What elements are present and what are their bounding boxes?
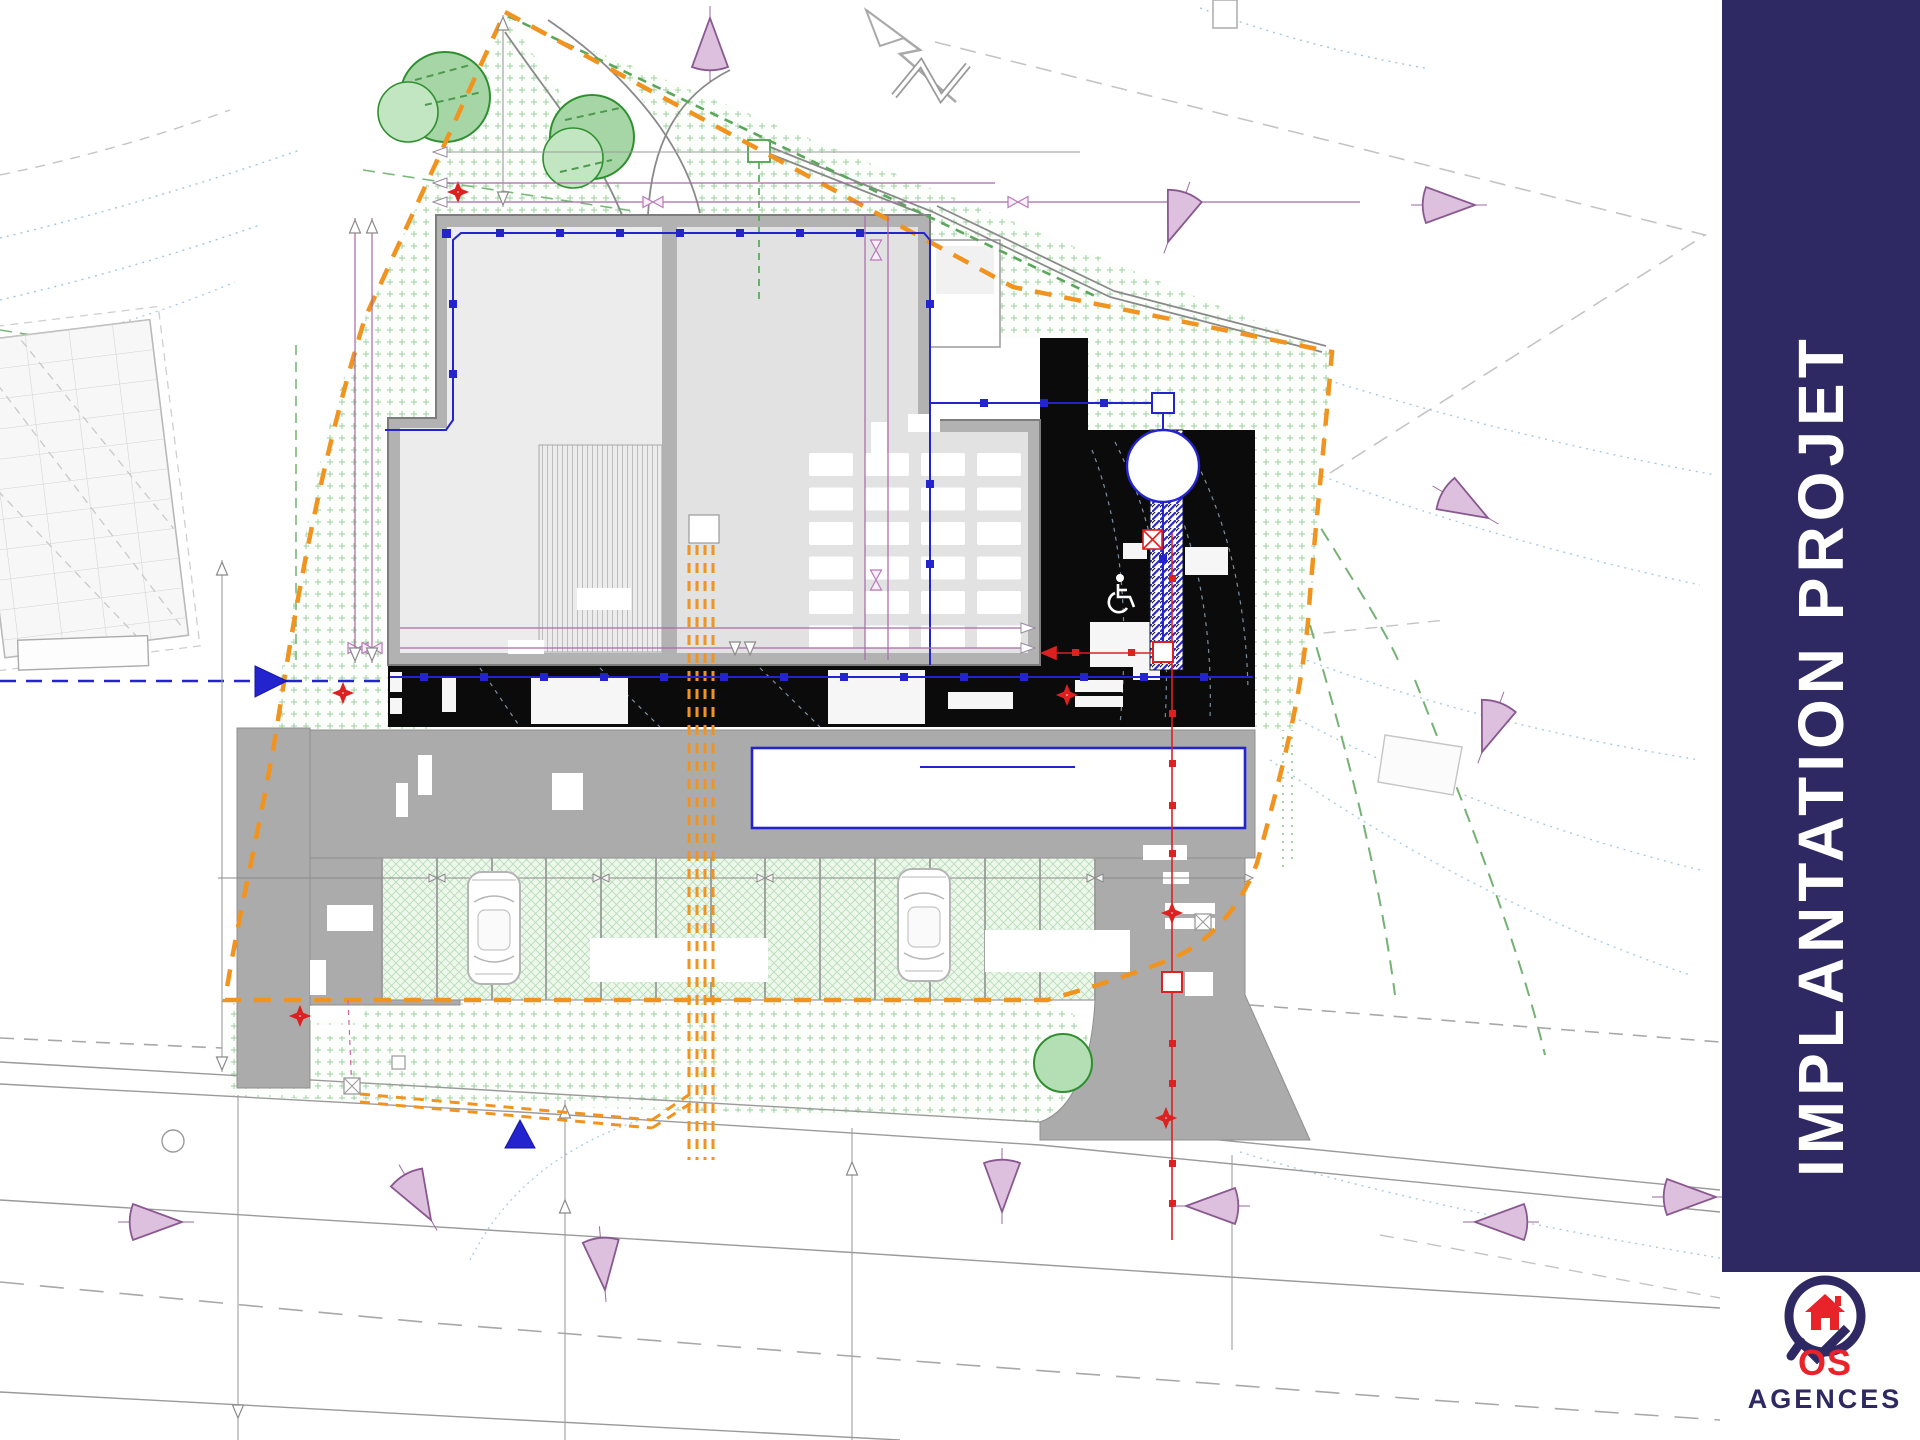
roof-terrace	[539, 445, 662, 652]
page: IMPLANTATION PROJET OS AGENCES	[0, 0, 1920, 1440]
site-plan	[0, 0, 1722, 1440]
logo-name: OS	[1798, 1342, 1852, 1384]
water-tank	[1127, 430, 1199, 502]
page-title: IMPLANTATION PROJET	[1789, 0, 1853, 1272]
brand-logo: OS AGENCES	[1730, 1272, 1920, 1440]
logo-name-suffix: OS	[1798, 1342, 1852, 1384]
parking-label-area	[590, 938, 768, 982]
parking-label-area	[985, 930, 1130, 972]
logo-subname: AGENCES	[1748, 1384, 1903, 1415]
sidebar: IMPLANTATION PROJET	[1722, 0, 1920, 1272]
skylight-grid	[805, 448, 1027, 654]
house-icon	[1805, 1294, 1845, 1330]
lawn	[225, 1003, 1092, 1122]
north-arrow-icon	[866, 10, 968, 102]
access-arrow	[505, 1120, 535, 1148]
manhole	[162, 1130, 184, 1152]
